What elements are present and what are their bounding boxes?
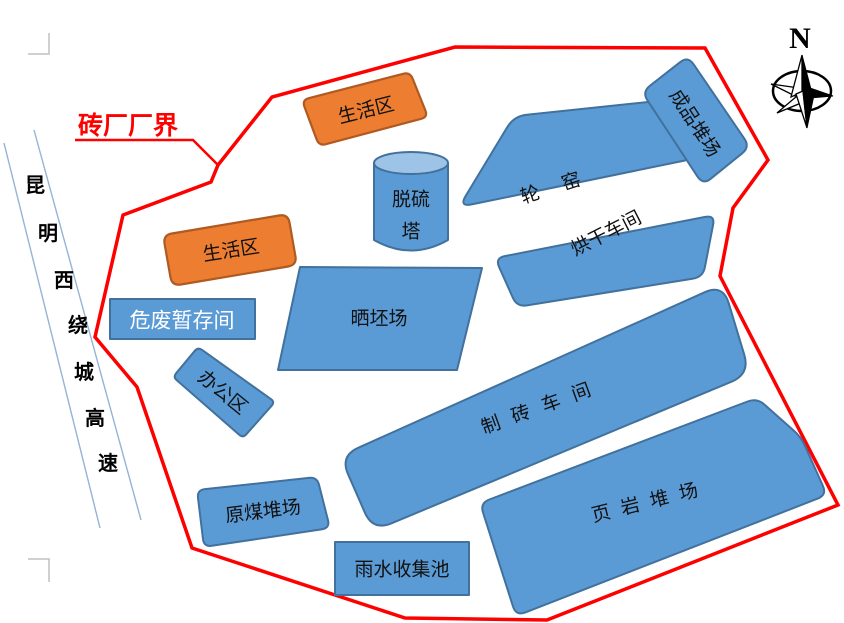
highway-name-char: 昆	[25, 174, 45, 197]
boundary-label: 砖厂厂界	[78, 111, 178, 140]
highway-name-char: 西	[54, 270, 74, 292]
highway-name-char: 城	[74, 360, 94, 384]
compass-north-label: N	[789, 22, 811, 55]
page-corner-mark-top-left	[28, 33, 49, 54]
boundary-label-leader-line	[75, 140, 218, 165]
page-corner-mark-bottom-left	[28, 559, 49, 582]
brick-drying-field-label: 晒坯场	[350, 308, 407, 330]
desulfurization-tower-top	[374, 152, 448, 174]
hazardous-waste-storage-label: 危废暂存间	[130, 308, 235, 332]
highway-name-char: 明	[38, 222, 58, 245]
compass-needle-north-east-half	[802, 55, 813, 97]
highway-name-char: 绕	[68, 313, 88, 337]
site-plan-canvas: 昆 明 西 绕 城 高 速 砖厂厂界 生活区 生活区 脱硫 塔 轮窑 成品堆场 …	[0, 0, 844, 623]
desulfurization-tower-label-line1: 脱硫	[392, 189, 430, 211]
site-plan-svg: 昆 明 西 绕 城 高 速 砖厂厂界 生活区 生活区 脱硫 塔 轮窑 成品堆场 …	[0, 0, 844, 623]
highway-name-char: 高	[85, 406, 105, 430]
compass-rose: N	[771, 22, 833, 128]
highway-name-char: 速	[98, 452, 118, 475]
compass-needle-north-west-half	[791, 55, 802, 97]
desulfurization-tower-label-line2: 塔	[401, 221, 420, 243]
rainwater-collection-pool-label: 雨水收集池	[354, 559, 449, 581]
